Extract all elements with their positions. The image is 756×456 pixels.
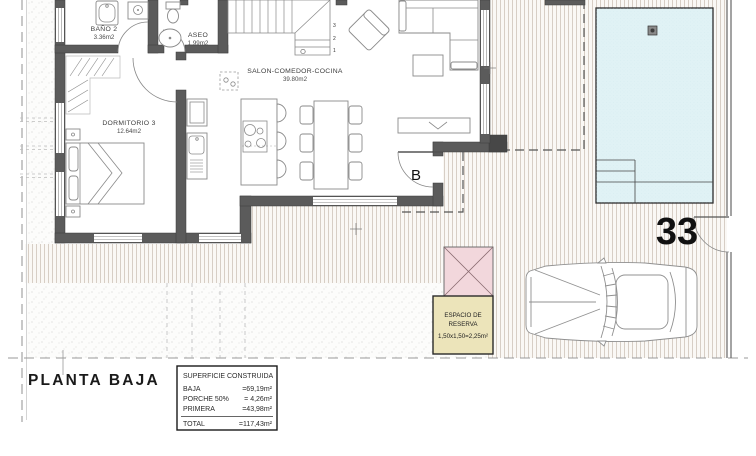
label-dormitorio3: DORMITORIO 3: [102, 120, 155, 127]
label-bano2: BAÑO 2: [91, 24, 118, 33]
wall-aseo-right: [218, 0, 228, 53]
coffee-table: [413, 55, 443, 76]
areas-row-value: =43,98m²: [242, 406, 272, 413]
label-door-b: B: [411, 167, 421, 184]
kitchen-sink-unit: [187, 133, 207, 179]
wall-central-stub: [176, 52, 186, 60]
window: [481, 10, 489, 66]
areas-total-value: =117,43m²: [239, 421, 273, 428]
stairs-newel: [301, 49, 305, 53]
door-arc-bano2: [118, 22, 148, 52]
window: [56, 8, 64, 42]
gravel-bottom-area: [27, 283, 497, 358]
label-aseo-area: 1.99m2: [188, 40, 209, 47]
kitchen-cabinet: [187, 99, 207, 126]
label-plot-number: 33: [656, 211, 698, 253]
dining-table: [314, 101, 348, 189]
stair-number-2: 2: [333, 36, 336, 42]
bar-stools: [277, 104, 286, 178]
staircase: 3 2 1: [228, 0, 336, 55]
areas-table-title: SUPERFICIE CONSTRUIDA: [183, 373, 274, 380]
areas-row-value: = 4,26m²: [244, 396, 272, 403]
kitchen-island: [241, 99, 277, 185]
reserve-label-line2: RESERVA: [449, 321, 479, 328]
stair-number-1: 1: [333, 48, 336, 54]
wall-bano-bottom: [55, 45, 118, 53]
washbasin: [128, 2, 148, 19]
utility-box: [220, 72, 238, 90]
wall-corner-pillar: [489, 135, 507, 152]
armchair: [348, 9, 390, 51]
reserve-roof: [444, 247, 493, 296]
pool-drain-icon: [648, 26, 657, 35]
nightstand: [66, 206, 80, 217]
door-arc-hall: [133, 58, 177, 102]
wardrobe: [66, 56, 120, 114]
plan-title: PLANTA BAJA: [28, 372, 160, 389]
bed: [66, 143, 144, 204]
areas-total-label: TOTAL: [183, 421, 205, 428]
window: [94, 234, 142, 242]
label-dormitorio3-area: 12.64m2: [117, 128, 142, 135]
label-bano2-area: 3.36m2: [94, 34, 115, 41]
label-aseo: ASEO: [188, 32, 208, 39]
areas-row-label: BAJA: [183, 386, 201, 393]
gravel-left-strip: [27, 0, 55, 246]
window: [199, 234, 241, 242]
bathtub: [96, 1, 118, 25]
window: [313, 197, 397, 205]
nightstand: [66, 129, 80, 140]
floor-plan-drawing: 3 2 1 ESPACIO DE: [0, 0, 756, 456]
wall-top-fragment-1: [180, 0, 188, 5]
wall-pergola-bar: [545, 0, 585, 5]
areas-row-label: PORCHE 50%: [183, 396, 229, 403]
areas-table: SUPERFICIE CONSTRUIDA BAJA =69,19m² PORC…: [177, 366, 277, 430]
wall-central: [176, 90, 186, 243]
right-fence: [727, 0, 731, 358]
label-salon: SALON-COMEDOR-COCINA: [247, 68, 343, 75]
tv-unit: [398, 118, 470, 133]
reserve-label-line3: 1,50x1,50=2,25m²: [438, 333, 488, 340]
wall-aseo-bottom-stub: [148, 45, 164, 53]
window: [56, 172, 64, 216]
areas-row-value: =69,19m²: [242, 386, 272, 393]
aseo-basin: [159, 29, 181, 47]
deck-entrance: [443, 152, 490, 206]
deck-bottom-strip: [25, 244, 488, 283]
window: [56, 103, 64, 153]
pool-water-texture: [596, 8, 713, 203]
label-salon-area: 39.80m2: [283, 76, 308, 83]
reserve-label-line1: ESPACIO DE: [444, 312, 481, 319]
wall-top-fragment-2: [336, 0, 347, 5]
wall-entrance-stub-bottom: [433, 183, 443, 206]
pool: [596, 8, 713, 203]
car: [526, 258, 697, 346]
window: [481, 84, 489, 134]
floor-plan-canvas: 3 2 1 ESPACIO DE: [0, 0, 756, 456]
areas-row-label: PRIMERA: [183, 406, 215, 413]
toilet: [166, 2, 180, 23]
stair-number-3: 3: [333, 23, 336, 29]
